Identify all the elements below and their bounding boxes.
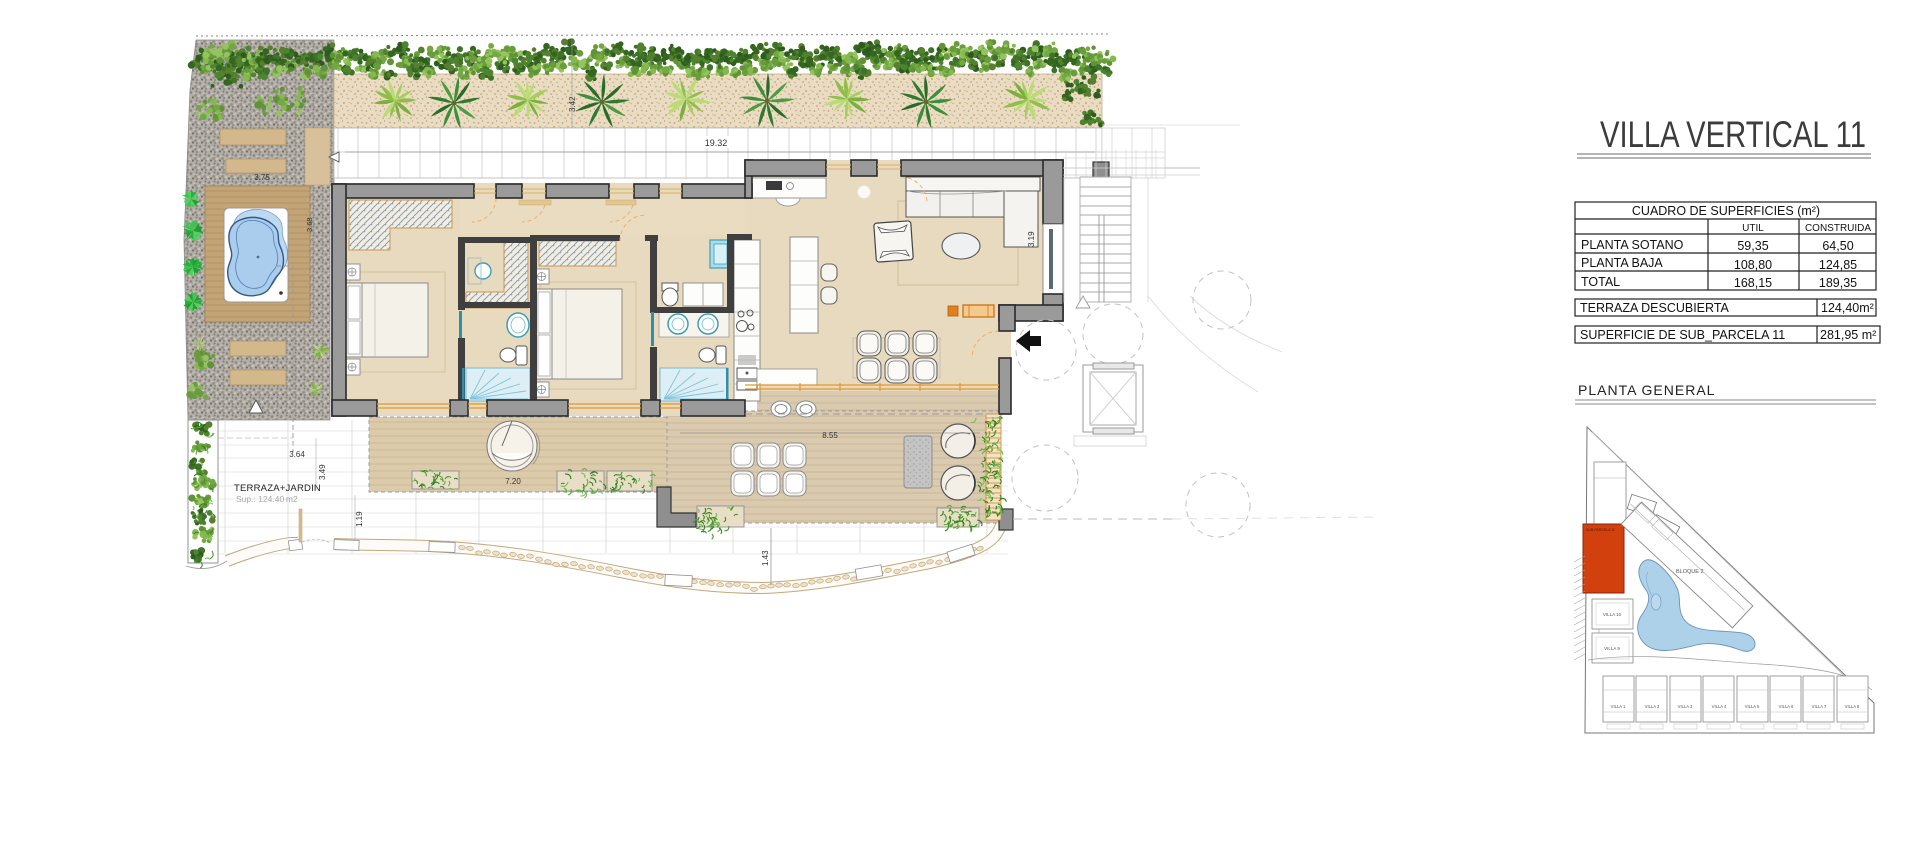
svg-text:TOTAL: TOTAL xyxy=(1581,275,1620,289)
svg-text:TERRAZA DESCUBIERTA: TERRAZA DESCUBIERTA xyxy=(1580,301,1730,315)
svg-text:3.42: 3.42 xyxy=(568,96,577,112)
svg-text:VILLA 6: VILLA 6 xyxy=(1779,704,1794,709)
svg-text:SUB-PARCELA 11: SUB-PARCELA 11 xyxy=(1586,528,1615,532)
svg-text:PLANTA GENERAL: PLANTA GENERAL xyxy=(1578,382,1715,398)
svg-text:168,15: 168,15 xyxy=(1734,276,1772,290)
svg-text:CONSTRUIDA: CONSTRUIDA xyxy=(1805,223,1871,234)
svg-text:VILLA 5: VILLA 5 xyxy=(1745,704,1760,709)
svg-text:UTIL: UTIL xyxy=(1742,223,1764,234)
svg-text:19.32: 19.32 xyxy=(705,138,728,148)
svg-text:SUPERFICIE DE SUB_PARCELA 11: SUPERFICIE DE SUB_PARCELA 11 xyxy=(1580,328,1785,342)
svg-text:3.19: 3.19 xyxy=(1027,231,1036,247)
svg-text:BLOQUE 2: BLOQUE 2 xyxy=(1676,569,1704,575)
svg-text:VILLA 10: VILLA 10 xyxy=(1603,612,1622,617)
svg-text:VILLA 2: VILLA 2 xyxy=(1645,704,1660,709)
svg-text:TERRAZA+JARDIN: TERRAZA+JARDIN xyxy=(234,483,321,494)
svg-text:3.75: 3.75 xyxy=(254,173,270,182)
svg-text:108,80: 108,80 xyxy=(1734,258,1772,272)
svg-text:VILLA 9: VILLA 9 xyxy=(1604,646,1620,651)
svg-text:Sup.: 124.40 m2: Sup.: 124.40 m2 xyxy=(236,494,298,504)
svg-text:189,35: 189,35 xyxy=(1819,276,1857,290)
svg-text:3.68: 3.68 xyxy=(305,217,314,232)
svg-text:124,40m²: 124,40m² xyxy=(1821,301,1874,315)
svg-text:59,35: 59,35 xyxy=(1737,239,1768,253)
svg-text:VILLA 3: VILLA 3 xyxy=(1678,704,1693,709)
svg-text:64,50: 64,50 xyxy=(1822,239,1853,253)
svg-text:281,95 m²: 281,95 m² xyxy=(1820,328,1876,342)
svg-text:VILLA 1: VILLA 1 xyxy=(1611,704,1626,709)
svg-text:VILLA 4: VILLA 4 xyxy=(1712,704,1727,709)
svg-text:7.20: 7.20 xyxy=(505,477,521,486)
svg-text:VILLA 7: VILLA 7 xyxy=(1812,704,1827,709)
svg-text:VILLA 8: VILLA 8 xyxy=(1845,704,1860,709)
svg-text:PLANTA BAJA: PLANTA BAJA xyxy=(1581,256,1663,270)
svg-text:PLANTA SOTANO: PLANTA SOTANO xyxy=(1581,238,1684,252)
svg-text:1.43: 1.43 xyxy=(761,550,770,566)
svg-text:3.49: 3.49 xyxy=(318,464,327,480)
svg-text:8.55: 8.55 xyxy=(822,431,838,440)
svg-text:3.64: 3.64 xyxy=(289,450,305,459)
svg-text:VILLA VERTICAL 11: VILLA VERTICAL 11 xyxy=(1600,114,1866,155)
svg-text:1.19: 1.19 xyxy=(355,511,364,527)
svg-text:CUADRO DE SUPERFICIES (m²): CUADRO DE SUPERFICIES (m²) xyxy=(1632,204,1820,218)
svg-text:124,85: 124,85 xyxy=(1819,258,1857,272)
